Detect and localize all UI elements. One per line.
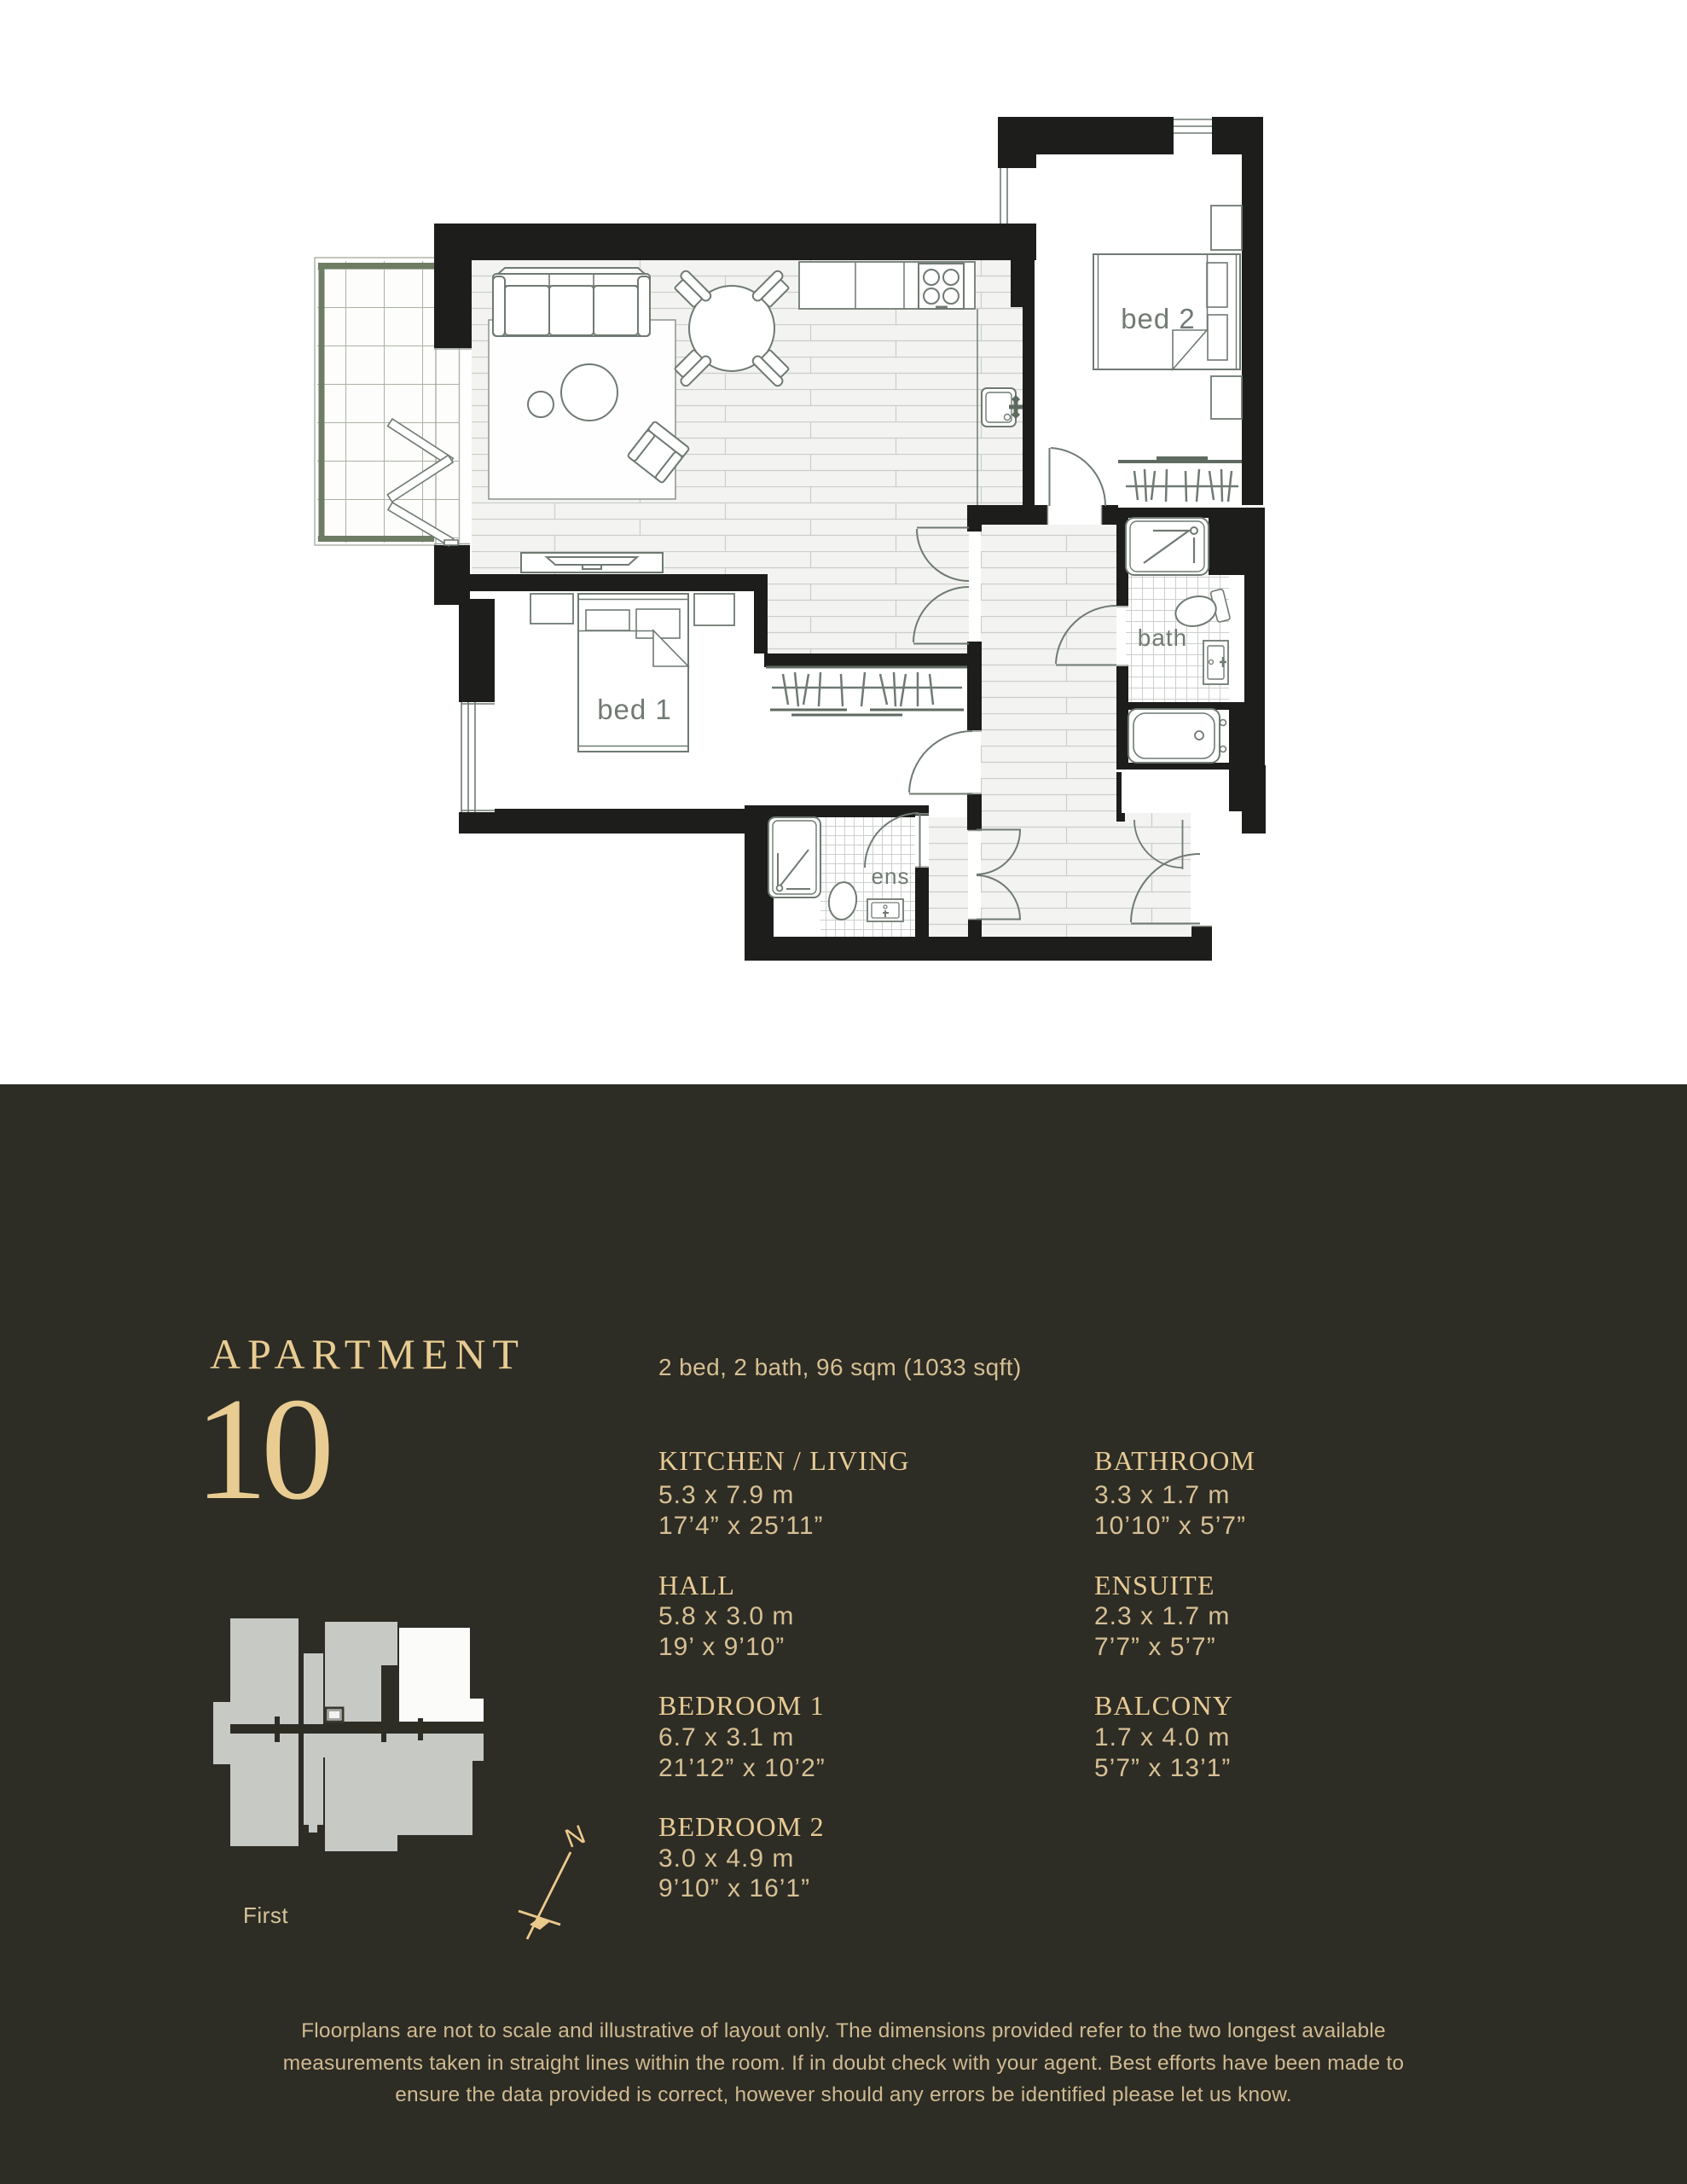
svg-text:HALL: HALL [658,1570,735,1600]
svg-text:6.7 x 3.1 m: 6.7 x 3.1 m [658,1723,794,1751]
svg-text:5’7” x 13’1”: 5’7” x 13’1” [1094,1754,1231,1782]
svg-text:21’12” x 10’2”: 21’12” x 10’2” [658,1754,826,1782]
svg-text:5.8 x 3.0 m: 5.8 x 3.0 m [658,1602,794,1630]
svg-text:BEDROOM 1: BEDROOM 1 [658,1690,825,1721]
svg-text:2 bed, 2 bath, 96 sqm (1033 sq: 2 bed, 2 bath, 96 sqm (1033 sqft) [658,1354,1022,1380]
svg-text:19’ x 9’10”: 19’ x 9’10” [658,1633,785,1661]
svg-text:measurements taken in straight: measurements taken in straight lines wit… [283,2052,1404,2075]
svg-text:1.7 x 4.0 m: 1.7 x 4.0 m [1094,1723,1230,1751]
svg-text:10’10” x 5’7”: 10’10” x 5’7” [1094,1512,1246,1540]
svg-text:7’7” x 5’7”: 7’7” x 5’7” [1094,1633,1216,1661]
svg-text:bed 2: bed 2 [1121,303,1196,334]
svg-text:ENSUITE: ENSUITE [1094,1570,1215,1600]
svg-text:17’4” x 25’11”: 17’4” x 25’11” [658,1512,824,1540]
svg-text:First: First [243,1902,288,1928]
svg-text:BALCONY: BALCONY [1094,1690,1233,1721]
svg-text:bath: bath [1138,624,1188,651]
svg-text:Floorplans are not to scale an: Floorplans are not to scale and illustra… [301,2019,1386,2042]
svg-text:3.0 x 4.9 m: 3.0 x 4.9 m [658,1844,794,1873]
svg-text:5.3 x 7.9 m: 5.3 x 7.9 m [658,1481,794,1509]
svg-text:3.3 x 1.7 m: 3.3 x 1.7 m [1094,1481,1230,1509]
svg-text:10: 10 [194,1368,329,1531]
svg-text:2.3 x 1.7 m: 2.3 x 1.7 m [1094,1602,1230,1630]
svg-text:bed 1: bed 1 [597,694,672,725]
svg-text:9’10” x 16’1”: 9’10” x 16’1” [658,1874,810,1902]
svg-text:ens: ens [872,863,910,889]
svg-text:ensure the data provided is co: ensure the data provided is correct, how… [395,2083,1292,2106]
svg-text:BEDROOM 2: BEDROOM 2 [658,1811,825,1842]
svg-text:KITCHEN / LIVING: KITCHEN / LIVING [658,1445,910,1476]
svg-text:BATHROOM: BATHROOM [1094,1445,1255,1476]
